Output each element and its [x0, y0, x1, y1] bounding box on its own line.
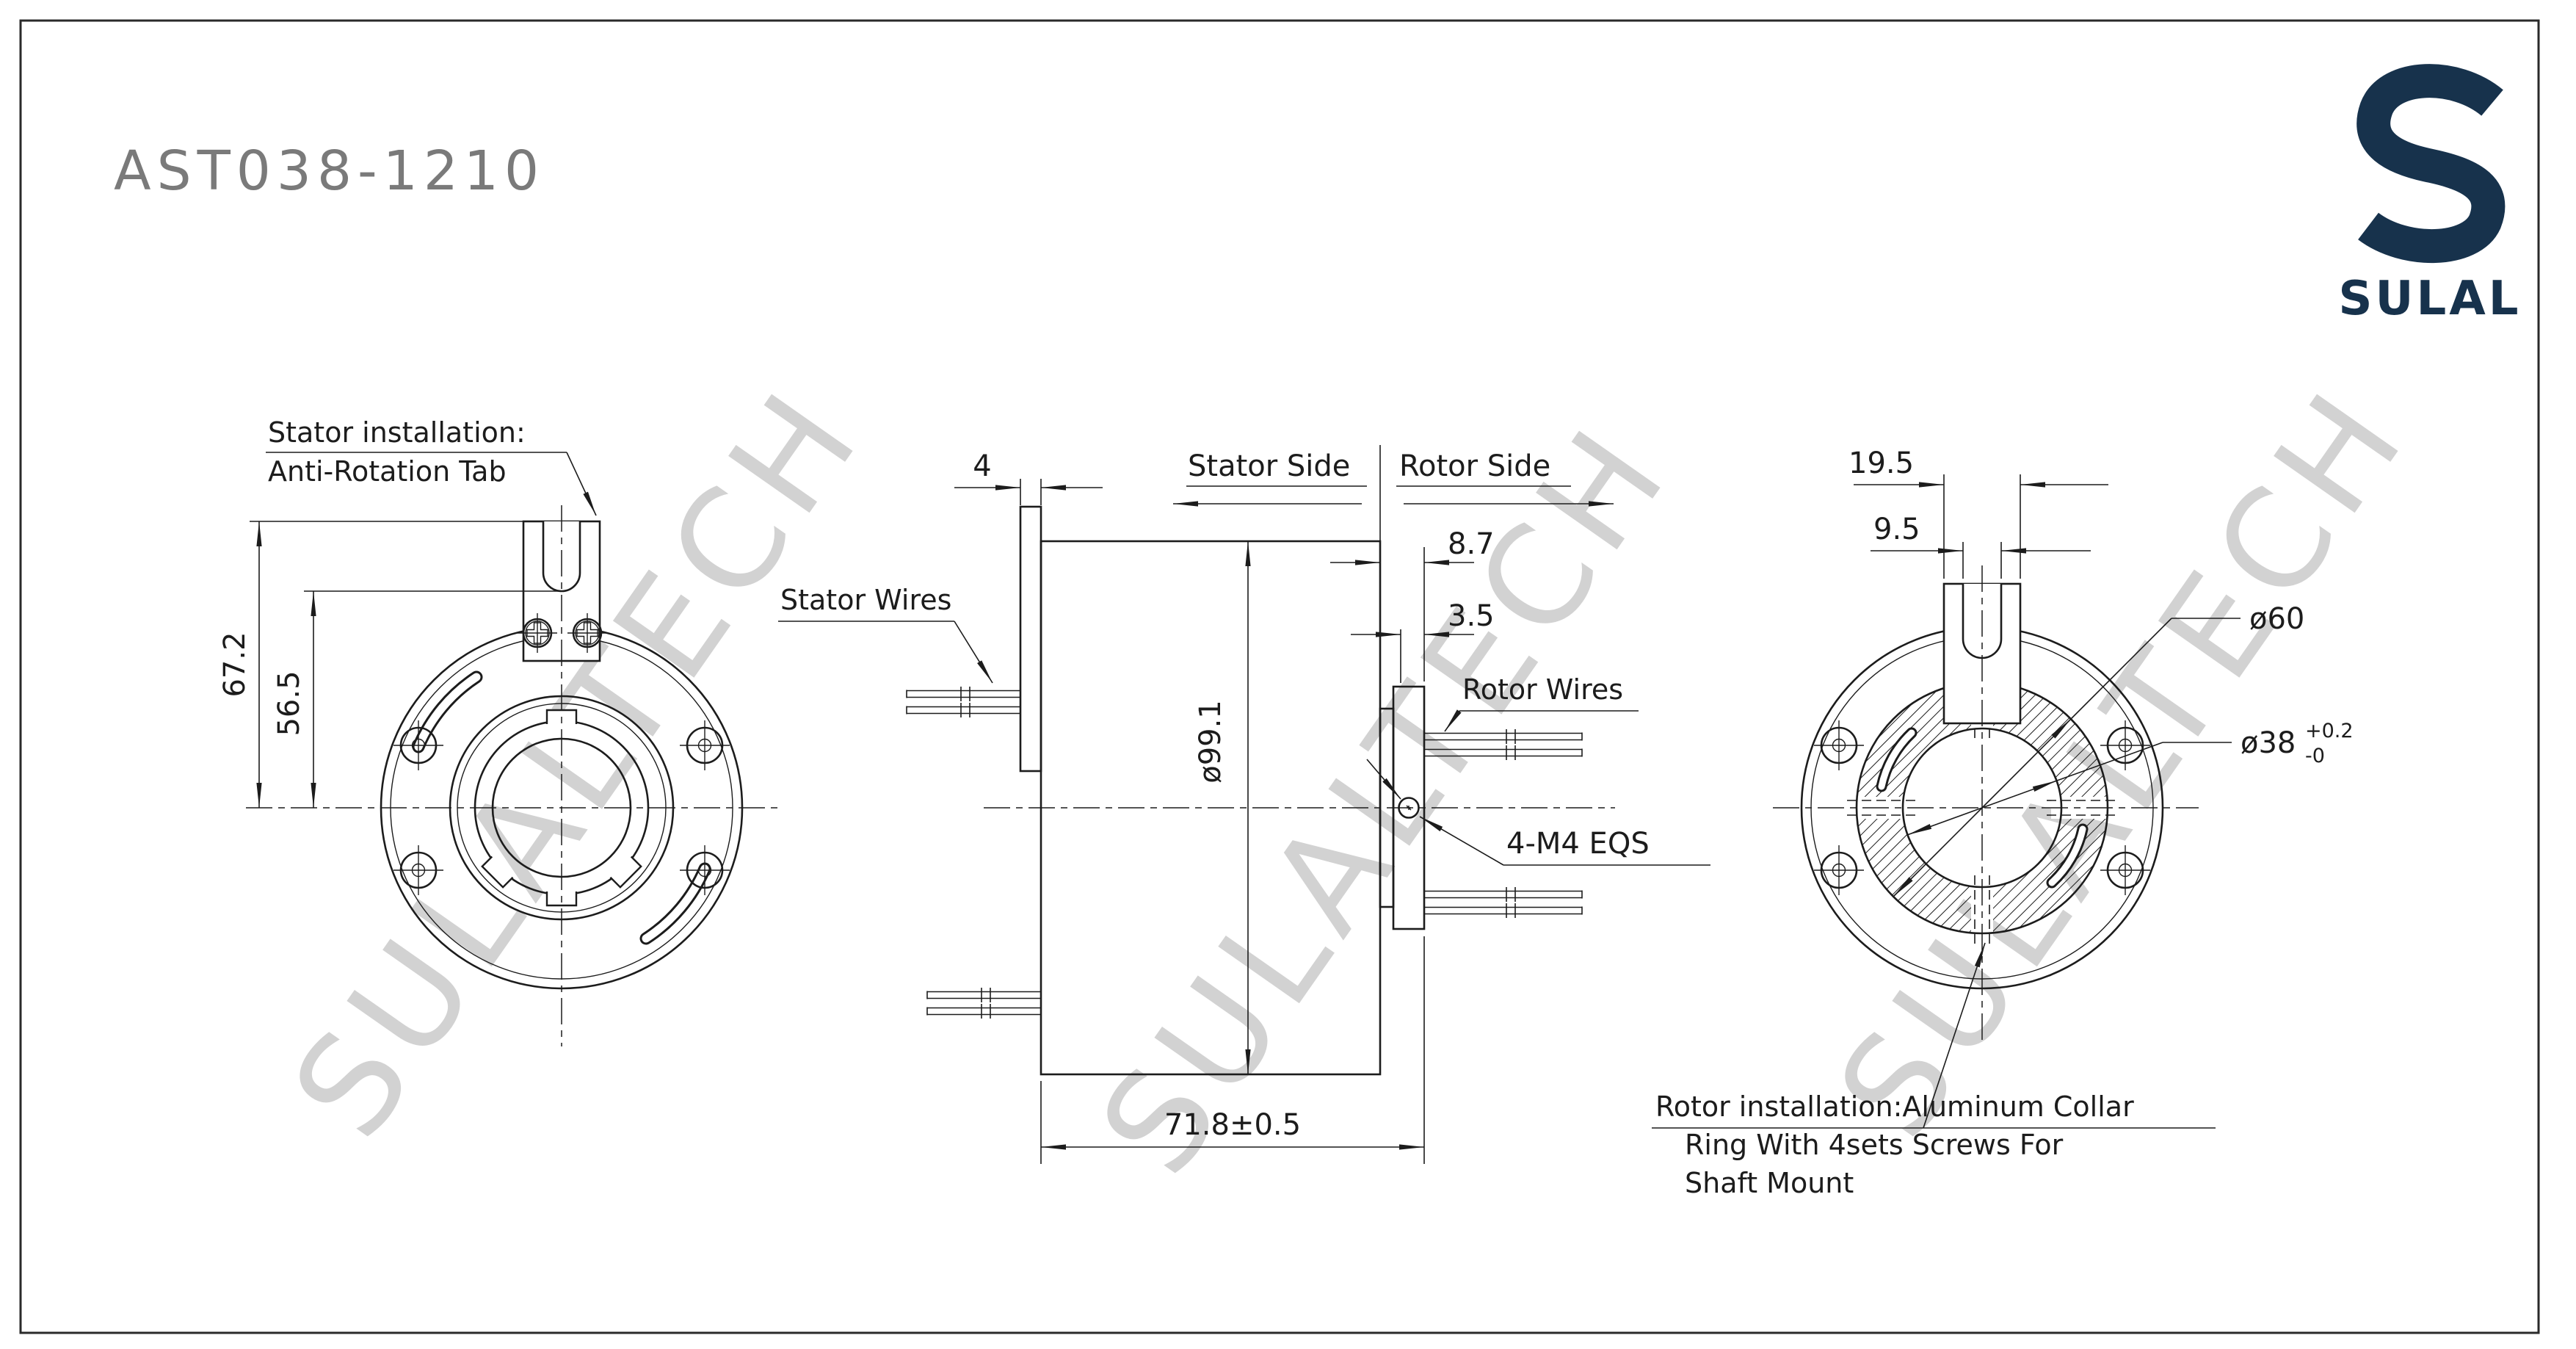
mounting-hole	[393, 720, 443, 770]
stator-side-label: Stator Side	[1188, 449, 1350, 483]
dim-tab-width: 19.5	[1848, 446, 1914, 480]
mounting-hole	[1814, 720, 1864, 770]
rotor-install-note-line2: Ring With 4sets Screws For	[1685, 1129, 2064, 1161]
watermark-text: SULALTECH	[1070, 396, 1700, 1201]
rotor-wires-label: Rotor Wires	[1462, 673, 1623, 706]
stator-wire	[907, 703, 1020, 717]
rotor-install-note-line3: Shaft Mount	[1685, 1167, 1854, 1199]
dim-tab-height: 67.2	[218, 632, 252, 697]
brand-name: SULAL	[2338, 272, 2521, 326]
dim-outer-diameter: ø60	[2249, 602, 2304, 636]
key-notch	[610, 856, 641, 887]
dim-slot-width: 9.5	[1873, 513, 1920, 546]
mounting-hole	[680, 845, 730, 895]
rotor-wire	[1424, 887, 1582, 902]
rotor-install-note-line1: Rotor installation:Aluminum Collar	[1655, 1091, 2134, 1123]
dim-slot-height: 56.5	[272, 670, 306, 736]
rotor-wire	[1424, 903, 1582, 918]
stator-install-note-line2: Anti-Rotation Tab	[268, 455, 507, 488]
drawing-page: SULALTECH SULALTECH SULALTECH AST038-121…	[0, 0, 2576, 1349]
dim-plate-thickness: 4	[973, 449, 991, 483]
stator-wires-label: Stator Wires	[780, 584, 951, 616]
drawing-canvas: SULALTECH SULALTECH SULALTECH AST038-121…	[0, 0, 2576, 1349]
stator-wires-leader	[954, 621, 993, 683]
drawing-title: AST038-1210	[114, 140, 545, 203]
rotor-side-label: Rotor Side	[1399, 449, 1550, 483]
m4-note: 4-M4 EQS	[1506, 827, 1650, 861]
dim-bore-diameter: ø38	[2241, 726, 2296, 760]
dim-rotor-overhang: 8.7	[1448, 527, 1495, 561]
dim-bore-tol-plus: +0.2	[2305, 720, 2354, 742]
dim-overall-length: 71.8±0.5	[1164, 1108, 1301, 1142]
stator-plate	[1020, 507, 1041, 771]
stator-install-note-line1: Stator installation:	[268, 416, 526, 449]
mounting-hole	[1814, 845, 1864, 895]
tab-leader	[567, 452, 596, 516]
dim-body-diameter: ø99.1	[1194, 700, 1227, 784]
brand-logo: SULAL	[2338, 81, 2521, 326]
brand-s-icon	[2368, 81, 2492, 246]
stator-wire	[927, 988, 1041, 1002]
stator-wire	[927, 1004, 1041, 1019]
stator-wire	[907, 687, 1020, 701]
dim-collar-thickness: 3.5	[1448, 599, 1495, 633]
dim-bore-tol-minus: -0	[2305, 745, 2325, 767]
watermarks: SULALTECH SULALTECH SULALTECH	[262, 359, 2438, 1201]
